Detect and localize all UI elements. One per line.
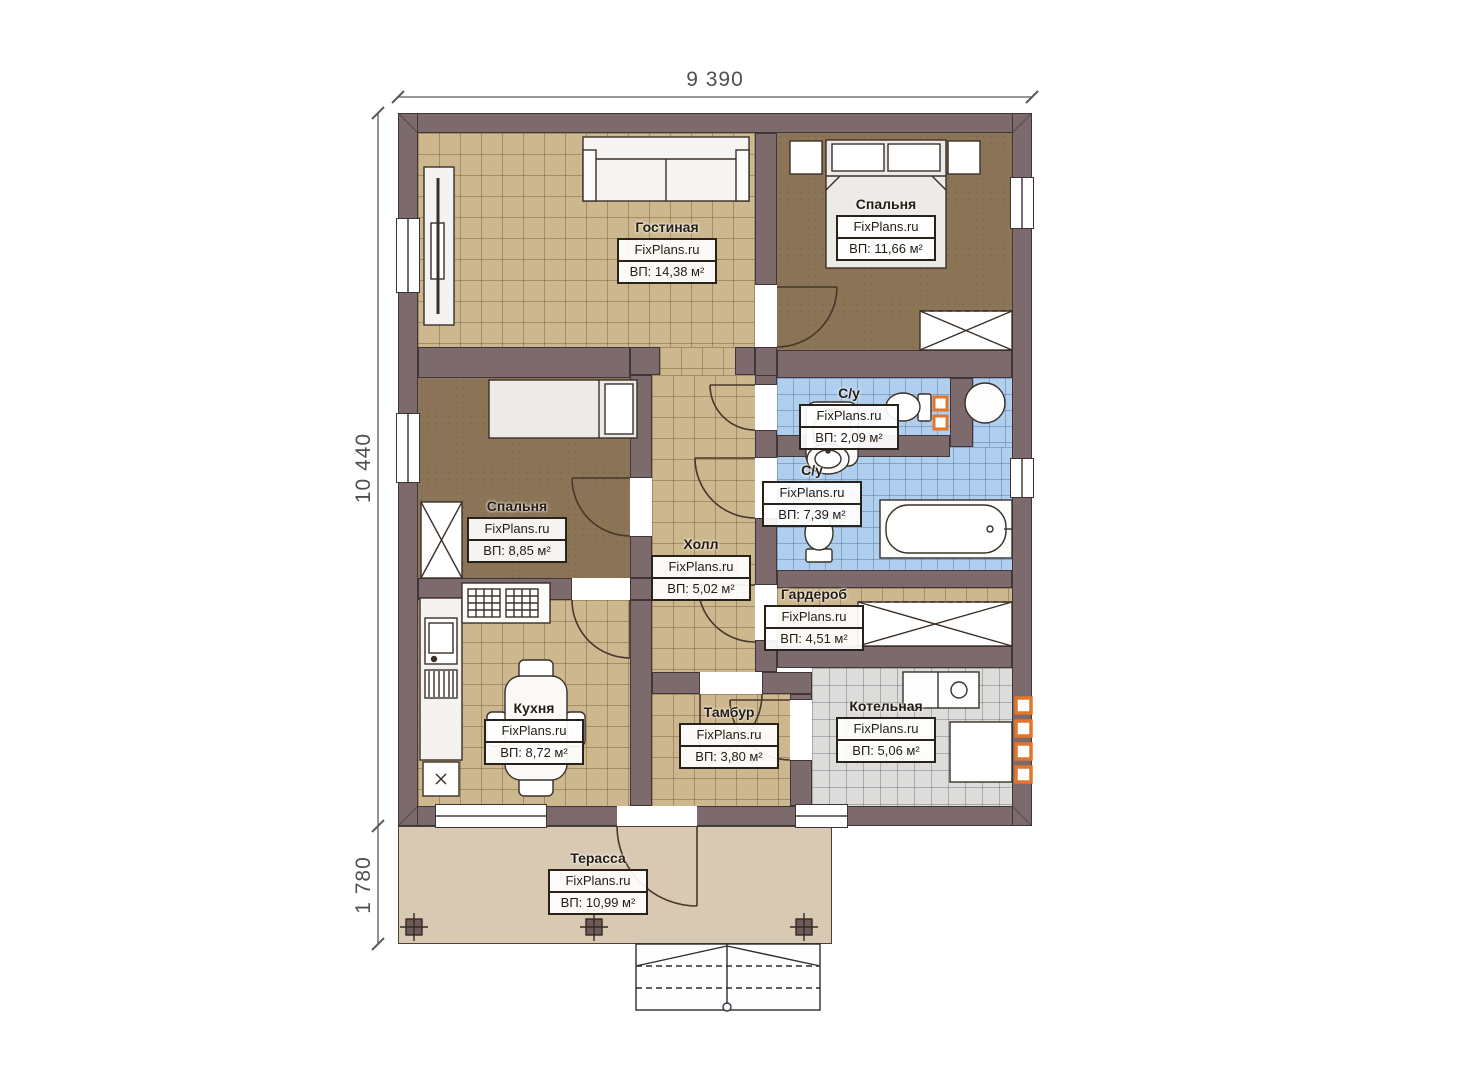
wall-living-bedroom2 (418, 347, 630, 378)
wall-segment (630, 578, 652, 600)
floor-wc-niche (973, 378, 1012, 447)
wall-kitchen-right (630, 600, 652, 806)
room-area: ВП: 8,85 м² (467, 539, 567, 563)
wall-tambour-boiler (790, 760, 812, 806)
wall-hall-left-mid (630, 536, 652, 578)
room-label-wc-small: С/у FixPlans.ru ВП: 2,09 м² (799, 385, 899, 450)
window-living-room (396, 218, 420, 293)
passage-living-hall (660, 347, 735, 375)
wall-segment (735, 347, 755, 375)
wall-segment (630, 347, 660, 375)
room-watermark: FixPlans.ru (617, 238, 717, 262)
room-label-tambour: Тамбур FixPlans.ru ВП: 3,80 м² (679, 704, 779, 769)
room-name: Кухня (484, 700, 584, 716)
window-kitchen (435, 804, 547, 828)
room-label-wardrobe: Гардероб FixPlans.ru ВП: 4,51 м² (764, 586, 864, 651)
wall-segment (755, 347, 777, 378)
floor-plan-canvas: Гостиная FixPlans.ru ВП: 14,38 м² Спальн… (0, 0, 1473, 1080)
room-watermark: FixPlans.ru (799, 404, 899, 428)
room-watermark: FixPlans.ru (484, 719, 584, 743)
room-label-terrace: Терасса FixPlans.ru ВП: 10,99 м² (548, 850, 648, 915)
room-area: ВП: 3,80 м² (679, 745, 779, 769)
window-bedroom-second (396, 413, 420, 483)
room-watermark: FixPlans.ru (836, 215, 936, 239)
room-name: Терасса (548, 850, 648, 866)
room-area: ВП: 14,38 м² (617, 260, 717, 284)
room-watermark: FixPlans.ru (836, 717, 936, 741)
room-watermark: FixPlans.ru (467, 517, 567, 541)
room-area: ВП: 2,09 м² (799, 426, 899, 450)
room-area: ВП: 8,72 м² (484, 741, 584, 765)
room-watermark: FixPlans.ru (762, 481, 862, 505)
dimension-main-depth: 10 440 (352, 433, 376, 503)
wall-outer-top (398, 113, 1032, 133)
door-opening-boiler (790, 700, 812, 760)
room-label-bedroom-master: Спальня FixPlans.ru ВП: 11,66 м² (836, 196, 936, 261)
room-label-wc-big: С/у FixPlans.ru ВП: 7,39 м² (762, 462, 862, 527)
wall-living-bedroom (755, 133, 777, 285)
room-watermark: FixPlans.ru (679, 723, 779, 747)
window-bedroom-master (1010, 177, 1034, 229)
wall-bedroom-bath (777, 350, 1012, 378)
wall-hall-right-1 (755, 375, 777, 385)
room-area: ВП: 5,02 м² (651, 577, 751, 601)
wall-wc-niche (950, 378, 973, 447)
room-area: ВП: 11,66 м² (836, 237, 936, 261)
room-watermark: FixPlans.ru (764, 605, 864, 629)
wall-hall-left-upper (630, 375, 652, 478)
room-watermark: FixPlans.ru (548, 869, 648, 893)
door-opening-wc-small (755, 385, 777, 430)
room-name: Гостиная (617, 219, 717, 235)
wall-tambour-top-right (762, 672, 812, 694)
room-name: Спальня (836, 196, 936, 212)
room-label-boiler: Котельная FixPlans.ru ВП: 5,06 м² (836, 698, 936, 763)
room-name: Котельная (836, 698, 936, 714)
window-boiler-room (795, 804, 848, 828)
room-name: Тамбур (679, 704, 779, 720)
door-opening-kitchen (572, 578, 630, 600)
room-area: ВП: 5,06 м² (836, 739, 936, 763)
room-name: С/у (799, 385, 899, 401)
room-area: ВП: 7,39 м² (762, 503, 862, 527)
room-label-living: Гостиная FixPlans.ru ВП: 14,38 м² (617, 219, 717, 284)
floor-hall (652, 375, 755, 672)
dimension-total-width: 9 390 (686, 68, 744, 92)
room-label-hall: Холл FixPlans.ru ВП: 5,02 м² (651, 536, 751, 601)
wall-hall-right-2 (755, 430, 777, 458)
room-name: Гардероб (764, 586, 864, 602)
entrance-steps (636, 944, 820, 1011)
room-watermark: FixPlans.ru (651, 555, 751, 579)
door-opening-tambour (700, 672, 762, 694)
wall-kitchen-top (418, 578, 572, 600)
wall-tambour-top-left (652, 672, 700, 694)
room-name: Холл (651, 536, 751, 552)
room-area: ВП: 10,99 м² (548, 891, 648, 915)
door-opening-entrance (617, 806, 697, 826)
window-bathroom (1010, 458, 1034, 498)
room-area: ВП: 4,51 м² (764, 627, 864, 651)
room-label-kitchen: Кухня FixPlans.ru ВП: 8,72 м² (484, 700, 584, 765)
wall-hall-right-3 (755, 518, 777, 585)
door-opening-bedroom-master (755, 285, 777, 347)
room-label-bedroom-second: Спальня FixPlans.ru ВП: 8,85 м² (467, 498, 567, 563)
room-name: С/у (762, 462, 862, 478)
dimension-terrace-depth: 1 780 (352, 856, 376, 914)
room-name: Спальня (467, 498, 567, 514)
